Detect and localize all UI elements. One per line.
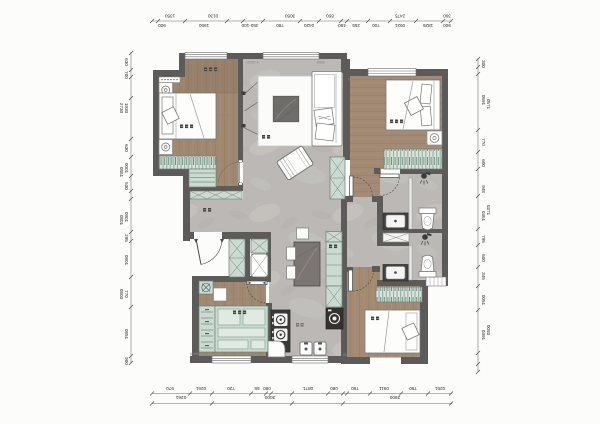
svg-text:795: 795	[481, 235, 486, 243]
svg-text:750: 750	[351, 386, 359, 391]
svg-text:600: 600	[481, 159, 486, 167]
svg-text:450-100: 450-100	[241, 23, 258, 28]
svg-text:0921: 0921	[394, 23, 405, 28]
svg-text:2730: 2730	[119, 103, 124, 114]
svg-text:0051: 0051	[481, 295, 486, 306]
svg-text:0801: 0801	[124, 255, 129, 266]
svg-text:700: 700	[124, 71, 129, 79]
svg-text:1950: 1950	[198, 23, 209, 28]
svg-text:0371: 0371	[486, 205, 491, 216]
svg-text:3050: 3050	[284, 14, 295, 19]
svg-text:300: 300	[481, 60, 486, 68]
svg-text:0803: 0803	[119, 289, 124, 300]
svg-text:630: 630	[124, 58, 129, 66]
svg-text:900: 900	[158, 23, 166, 28]
svg-text:55: 55	[254, 386, 260, 391]
svg-text:770: 770	[481, 138, 486, 146]
svg-text:970: 970	[166, 386, 174, 391]
svg-text:700: 700	[372, 23, 380, 28]
svg-text:0251: 0251	[434, 386, 445, 391]
svg-text:-8888: -8888	[316, 61, 325, 65]
svg-text:630: 630	[124, 144, 129, 152]
svg-text:1350: 1350	[164, 14, 175, 19]
svg-text:0391: 0391	[481, 330, 486, 341]
svg-text:8000m-4: 8000m-4	[343, 353, 356, 357]
svg-text:780: 780	[276, 23, 284, 28]
svg-text:C1815-8: C1815-8	[186, 61, 199, 65]
svg-text:255: 255	[352, 23, 360, 28]
svg-text:0571: 0571	[486, 99, 491, 110]
svg-text:295: 295	[124, 234, 129, 242]
svg-text:720: 720	[227, 386, 235, 391]
svg-text:300: 300	[443, 14, 451, 19]
svg-text:3900: 3900	[389, 394, 400, 400]
svg-text:0261: 0261	[175, 394, 186, 400]
svg-text:345: 345	[481, 272, 486, 280]
svg-text:10000-4: 10000-4	[246, 61, 259, 65]
svg-text:0351: 0351	[481, 211, 486, 222]
svg-text:900: 900	[124, 357, 129, 365]
svg-text:0911: 0911	[379, 386, 389, 391]
svg-text:-8888: -8888	[419, 78, 428, 82]
svg-text:0851: 0851	[124, 329, 129, 340]
svg-text:948: 948	[481, 185, 486, 193]
svg-text:0591: 0591	[481, 95, 486, 106]
svg-text:0871: 0871	[302, 386, 313, 391]
svg-text:080: 080	[263, 386, 271, 391]
svg-text:750: 750	[409, 386, 417, 391]
svg-text:0261: 0261	[195, 386, 206, 391]
svg-text:450: 450	[338, 23, 346, 28]
svg-text:900: 900	[443, 23, 451, 28]
svg-text:2475: 2475	[394, 14, 405, 19]
svg-text:600: 600	[481, 254, 486, 262]
svg-text:530: 530	[124, 182, 129, 190]
svg-text:R2000: R2000	[250, 352, 260, 356]
svg-text:4-00888: 4-00888	[402, 353, 415, 357]
svg-text:0093: 0093	[486, 325, 491, 336]
svg-text:0861: 0861	[119, 167, 124, 178]
svg-text:0130: 0130	[207, 14, 218, 19]
svg-text:0801: 0801	[119, 215, 124, 226]
svg-text:3000: 3000	[264, 394, 275, 400]
svg-text:0420: 0420	[303, 23, 314, 28]
svg-text:080: 080	[330, 386, 338, 391]
svg-text:ANN8CE: ANN8CE	[190, 352, 204, 356]
svg-text:1825: 1825	[422, 23, 433, 28]
svg-text:0000-4: 0000-4	[348, 78, 359, 82]
svg-text:850: 850	[326, 14, 334, 19]
